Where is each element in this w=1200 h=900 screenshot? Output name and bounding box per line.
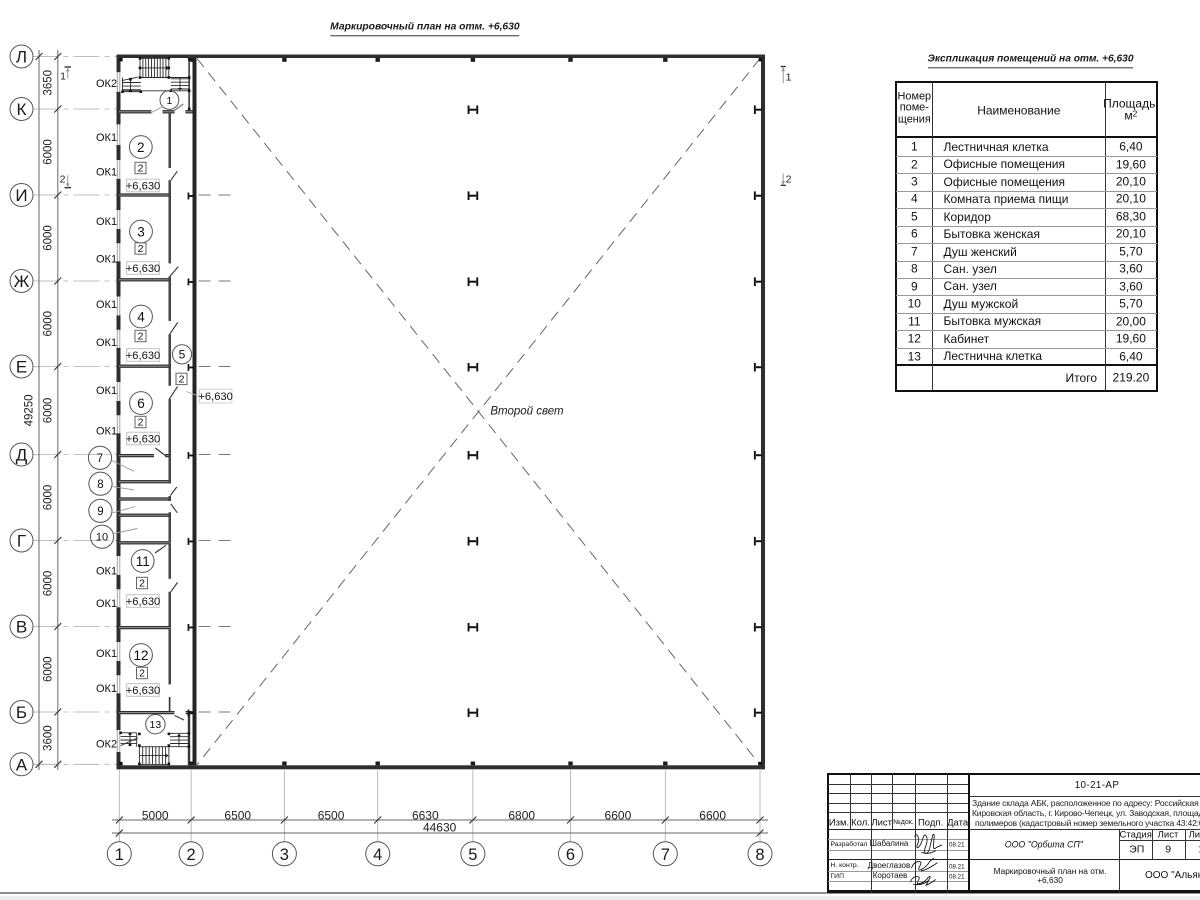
svg-text:2: 2 — [139, 668, 145, 680]
svg-text:ОК1: ОК1 — [96, 683, 117, 695]
svg-text:6600: 6600 — [699, 808, 726, 822]
svg-text:2: 2 — [60, 174, 66, 186]
svg-text:2: 2 — [138, 331, 144, 343]
svg-text:А: А — [16, 755, 28, 774]
svg-text:10: 10 — [96, 532, 108, 544]
svg-text:3: 3 — [137, 224, 145, 239]
svg-text:6: 6 — [566, 846, 575, 864]
svg-text:2: 2 — [137, 140, 145, 155]
svg-text:2: 2 — [138, 163, 144, 175]
svg-text:12: 12 — [133, 648, 148, 663]
svg-text:6000: 6000 — [42, 656, 54, 682]
svg-text:1: 1 — [115, 846, 124, 864]
svg-text:ОК1: ОК1 — [96, 425, 117, 437]
svg-text:ОК1: ОК1 — [96, 166, 117, 178]
svg-text:2: 2 — [139, 578, 145, 590]
svg-text:ОК2: ОК2 — [96, 738, 117, 750]
svg-text:ОК1: ОК1 — [96, 132, 117, 144]
svg-text:+6,630: +6,630 — [126, 263, 161, 275]
svg-text:+6,630: +6,630 — [126, 685, 161, 697]
svg-text:ОК1: ОК1 — [96, 253, 117, 265]
svg-text:49250: 49250 — [24, 394, 36, 426]
svg-text:4: 4 — [373, 846, 382, 864]
svg-text:Б: Б — [16, 703, 27, 722]
svg-text:9: 9 — [97, 506, 103, 518]
svg-text:3: 3 — [280, 846, 289, 864]
svg-text:8: 8 — [97, 479, 103, 491]
svg-text:2: 2 — [138, 417, 144, 429]
svg-text:+6,630: +6,630 — [198, 391, 233, 403]
svg-text:2: 2 — [187, 846, 196, 864]
svg-text:Ж: Ж — [14, 272, 30, 291]
svg-text:ОК1: ОК1 — [96, 216, 117, 228]
svg-text:6000: 6000 — [42, 225, 54, 251]
svg-text:+6,630: +6,630 — [126, 596, 161, 608]
svg-text:6800: 6800 — [508, 808, 535, 822]
svg-text:2: 2 — [138, 243, 144, 255]
svg-text:ОК1: ОК1 — [96, 385, 117, 397]
svg-text:13: 13 — [150, 719, 162, 731]
svg-text:6000: 6000 — [42, 139, 54, 165]
svg-text:ОК1: ОК1 — [96, 648, 117, 660]
svg-text:44630: 44630 — [423, 820, 457, 834]
svg-text:4: 4 — [137, 309, 145, 324]
svg-text:5: 5 — [468, 846, 477, 864]
svg-text:ОК1: ОК1 — [96, 337, 117, 349]
svg-text:5: 5 — [179, 348, 186, 362]
svg-text:2: 2 — [179, 374, 185, 386]
svg-text:2: 2 — [786, 174, 792, 186]
svg-text:+6,630: +6,630 — [126, 434, 161, 446]
svg-text:6500: 6500 — [318, 808, 345, 822]
svg-text:Г: Г — [17, 532, 26, 551]
svg-text:6600: 6600 — [605, 808, 632, 822]
svg-text:6500: 6500 — [224, 808, 251, 822]
svg-text:7: 7 — [661, 846, 670, 864]
svg-text:Второй свет: Второй свет — [490, 406, 564, 418]
svg-text:11: 11 — [136, 554, 150, 569]
svg-text:1: 1 — [60, 71, 66, 83]
svg-text:5000: 5000 — [142, 808, 169, 822]
svg-text:1: 1 — [786, 72, 792, 84]
svg-text:ОК2: ОК2 — [96, 78, 117, 90]
svg-text:6000: 6000 — [42, 398, 54, 424]
svg-text:+6,630: +6,630 — [126, 181, 161, 193]
svg-text:1: 1 — [166, 95, 172, 107]
svg-text:В: В — [16, 618, 27, 637]
svg-text:ОК1: ОК1 — [96, 565, 117, 577]
svg-text:6: 6 — [137, 396, 145, 411]
svg-text:ОК1: ОК1 — [96, 598, 117, 610]
svg-text:+6,630: +6,630 — [126, 350, 161, 362]
svg-text:И: И — [15, 186, 27, 205]
svg-text:3650: 3650 — [42, 70, 54, 96]
svg-text:Л: Л — [16, 48, 27, 67]
svg-text:Е: Е — [16, 358, 27, 377]
svg-text:К: К — [17, 100, 27, 119]
svg-text:7: 7 — [97, 453, 103, 465]
svg-text:Д: Д — [16, 446, 28, 465]
svg-text:8: 8 — [755, 846, 764, 864]
svg-text:6000: 6000 — [42, 485, 54, 511]
svg-text:6000: 6000 — [42, 571, 54, 597]
svg-text:3600: 3600 — [42, 725, 54, 751]
svg-text:ОК1: ОК1 — [96, 299, 117, 311]
svg-text:6000: 6000 — [42, 311, 54, 337]
